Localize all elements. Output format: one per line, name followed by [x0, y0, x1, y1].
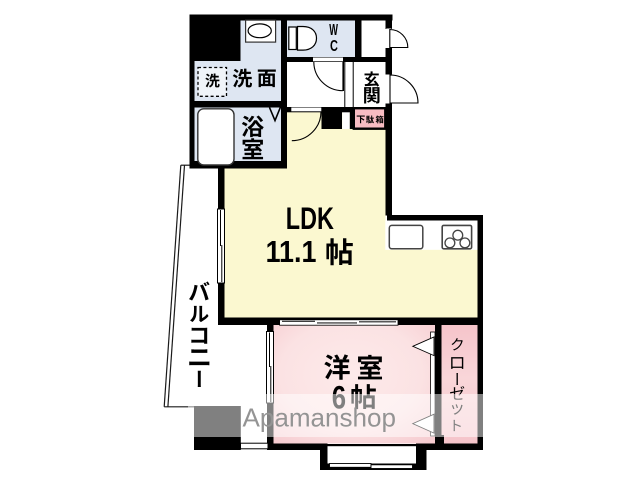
- svg-text:LDK: LDK: [286, 201, 334, 236]
- svg-text:C: C: [330, 38, 338, 55]
- svg-text:W: W: [329, 22, 338, 39]
- svg-text:11.1: 11.1: [266, 234, 317, 269]
- svg-text:Apamanshop: Apamanshop: [243, 403, 397, 433]
